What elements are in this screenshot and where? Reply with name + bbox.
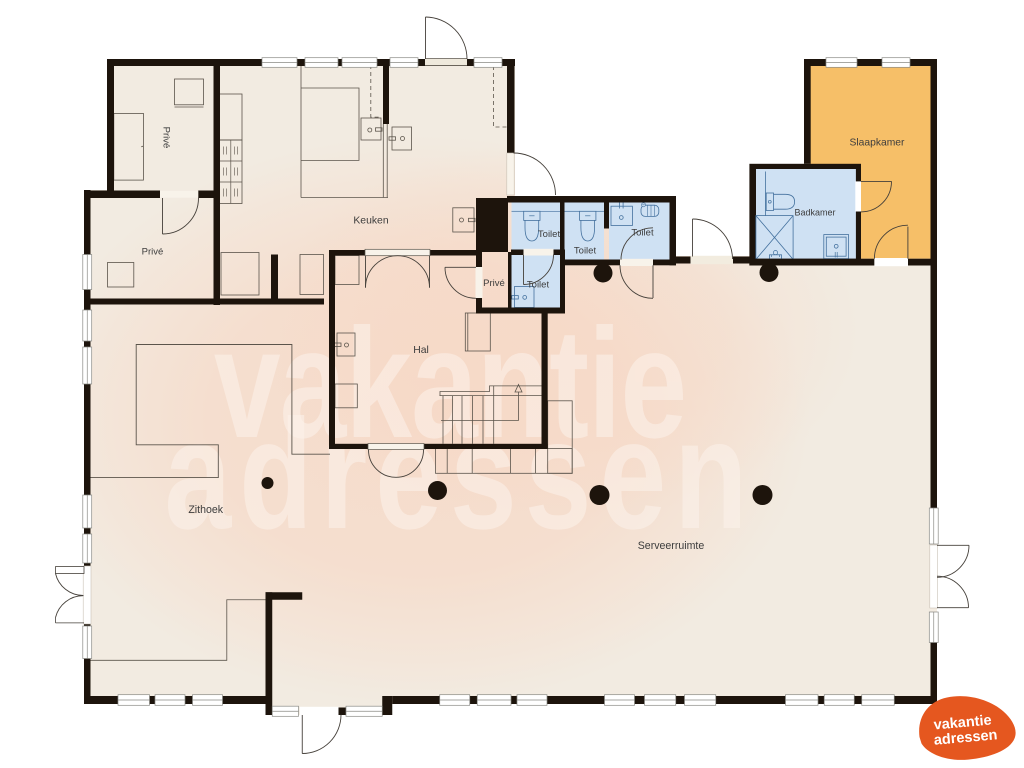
svg-text:Privé: Privé — [142, 247, 164, 258]
svg-text:Serveerruimte: Serveerruimte — [638, 540, 705, 552]
svg-text:Hal: Hal — [413, 345, 429, 356]
svg-text:Slaapkamer: Slaapkamer — [850, 138, 906, 149]
svg-text:Privé: Privé — [161, 127, 172, 149]
svg-text:Keuken: Keuken — [353, 216, 388, 227]
svg-text:Toilet: Toilet — [574, 246, 597, 257]
svg-text:Zithoek: Zithoek — [188, 504, 223, 516]
svg-text:Toilet: Toilet — [538, 229, 561, 240]
svg-text:Toilet: Toilet — [527, 280, 550, 291]
svg-text:adressen: adressen — [165, 388, 756, 562]
svg-text:Toilet: Toilet — [631, 228, 654, 239]
svg-text:Privé: Privé — [483, 278, 505, 289]
svg-text:Badkamer: Badkamer — [794, 208, 835, 218]
